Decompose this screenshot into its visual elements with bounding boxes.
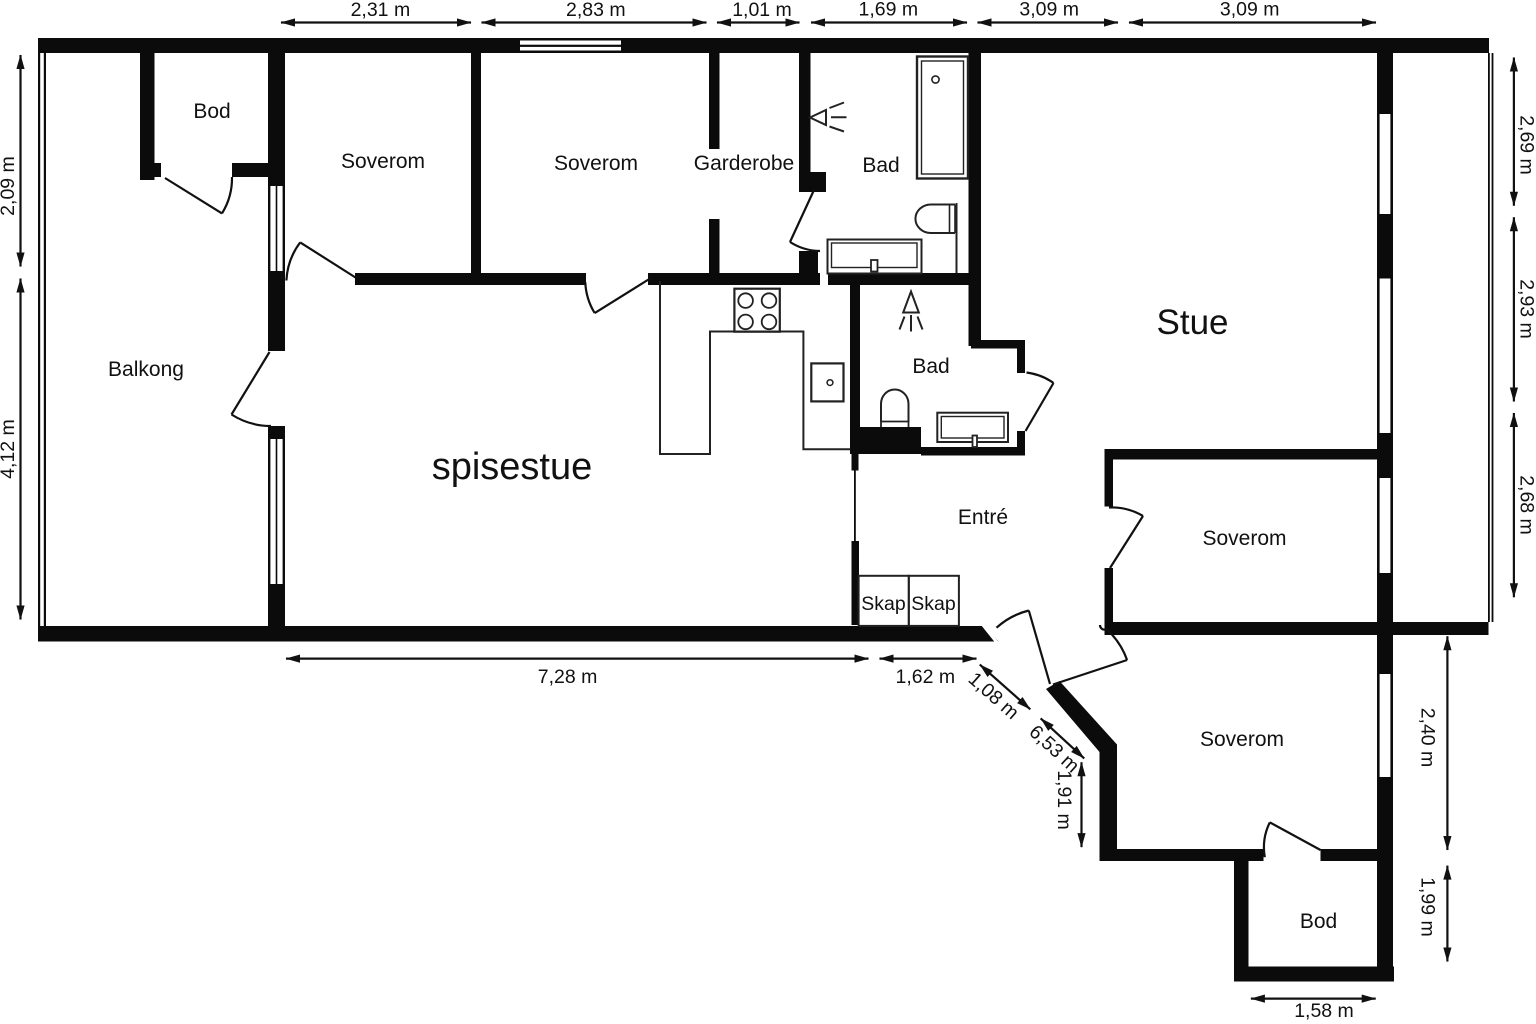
svg-text:1,01 m: 1,01 m	[732, 0, 792, 21]
svg-text:Soverom: Soverom	[1202, 527, 1286, 550]
svg-text:2,31 m: 2,31 m	[351, 0, 411, 21]
svg-text:2,09 m: 2,09 m	[0, 156, 19, 216]
svg-text:2,83 m: 2,83 m	[566, 0, 626, 21]
svg-text:spisestue: spisestue	[432, 446, 593, 488]
svg-text:Skap: Skap	[861, 593, 906, 615]
svg-text:1,69 m: 1,69 m	[858, 0, 918, 21]
svg-text:3,09 m: 3,09 m	[1019, 0, 1079, 21]
svg-text:Bod: Bod	[193, 100, 230, 123]
svg-text:3,09 m: 3,09 m	[1220, 0, 1280, 21]
svg-text:1,62 m: 1,62 m	[895, 666, 955, 688]
svg-text:Soverom: Soverom	[341, 150, 425, 173]
svg-text:2,69 m: 2,69 m	[1516, 115, 1536, 175]
svg-text:Bod: Bod	[1300, 910, 1337, 933]
svg-text:Stue: Stue	[1157, 303, 1229, 342]
svg-text:Skap: Skap	[911, 593, 956, 615]
svg-text:2,40 m: 2,40 m	[1417, 708, 1439, 768]
svg-text:Soverom: Soverom	[1200, 728, 1284, 751]
svg-text:Bad: Bad	[912, 355, 949, 378]
svg-text:Garderobe: Garderobe	[694, 152, 794, 175]
svg-text:4,12 m: 4,12 m	[0, 419, 19, 479]
svg-text:2,68 m: 2,68 m	[1516, 475, 1536, 535]
svg-text:7,28 m: 7,28 m	[538, 666, 598, 688]
svg-text:2,93 m: 2,93 m	[1516, 279, 1536, 339]
svg-text:1,91 m: 1,91 m	[1053, 770, 1075, 830]
svg-text:Entré: Entré	[958, 506, 1008, 529]
svg-text:1,58 m: 1,58 m	[1294, 1000, 1354, 1022]
svg-text:Bad: Bad	[862, 154, 899, 177]
svg-text:Soverom: Soverom	[554, 152, 638, 175]
svg-text:1,99 m: 1,99 m	[1417, 877, 1439, 937]
svg-text:Balkong: Balkong	[108, 358, 184, 381]
